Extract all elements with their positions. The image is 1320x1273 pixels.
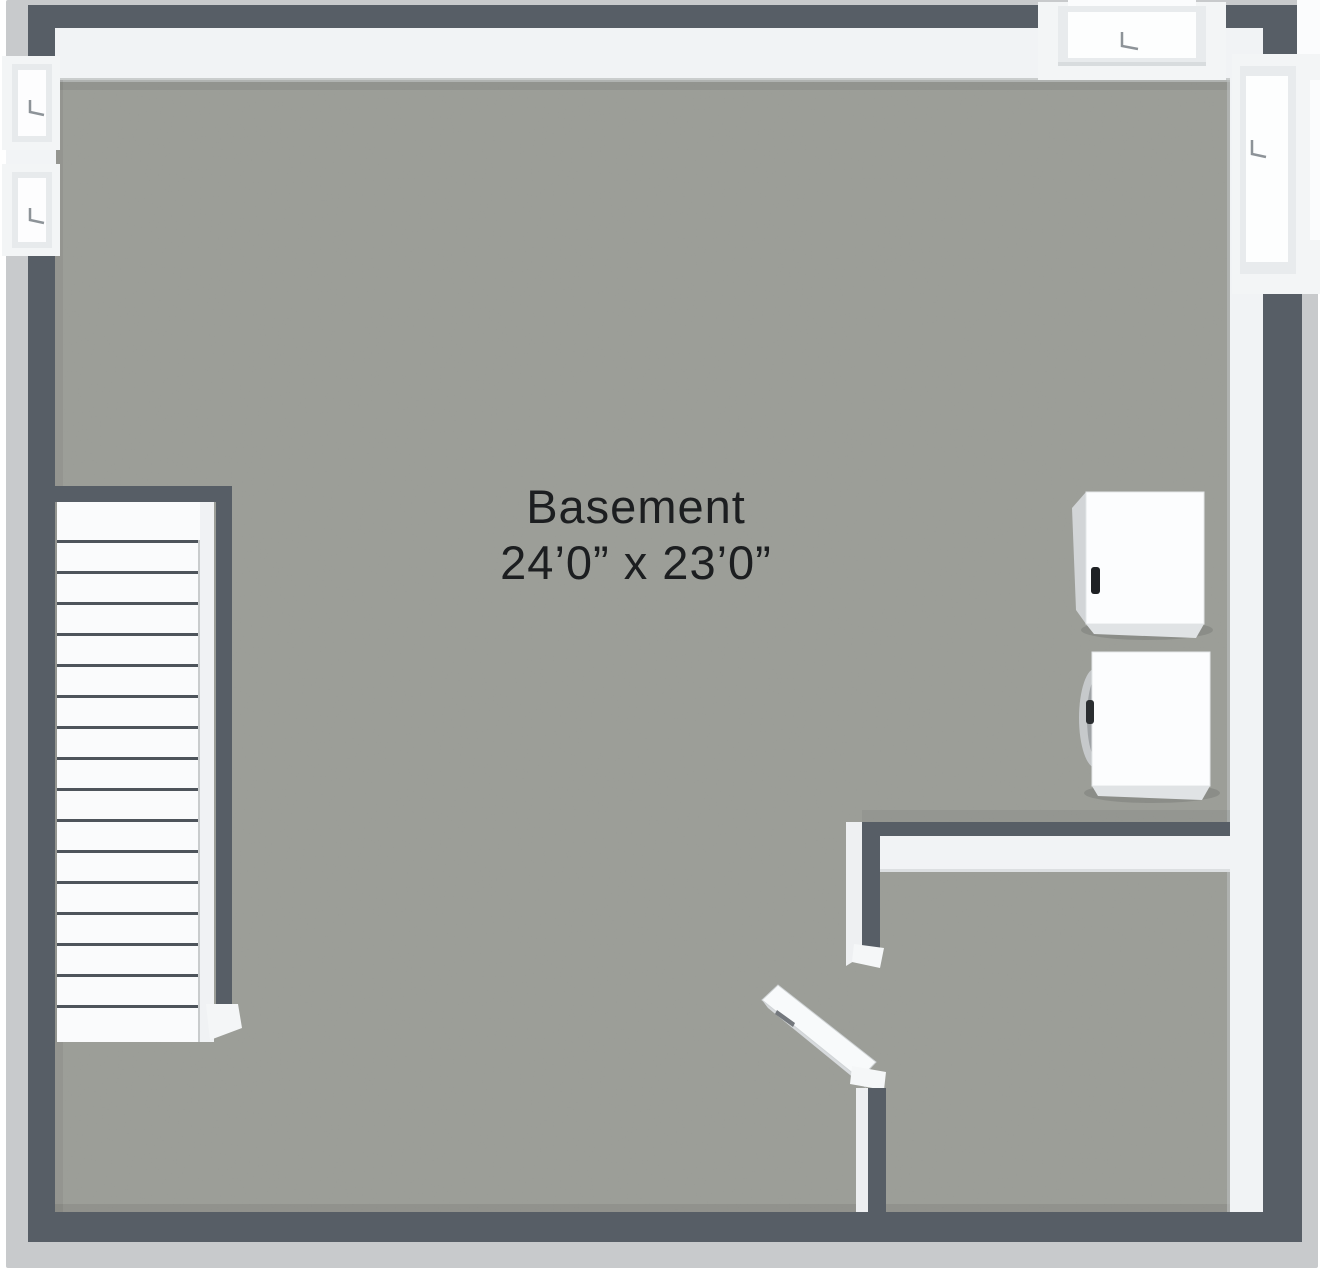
utility-wall-top-dark	[862, 822, 1230, 836]
window-well	[1310, 80, 1320, 240]
top-window	[1038, 0, 1226, 80]
window-pane	[1068, 12, 1196, 58]
utility-wall-inner-face	[862, 836, 1230, 872]
stair-tread-line	[57, 540, 200, 543]
stair-tread-line	[57, 943, 200, 946]
outside-corner-highlight	[1297, 0, 1320, 62]
window-sill-shadow	[1058, 62, 1206, 66]
floor-shadow-bottom	[55, 1204, 1230, 1212]
stair-tread-line	[57, 664, 200, 667]
stair-tread-line	[57, 881, 200, 884]
washer-detergent-slot	[1091, 567, 1100, 594]
utility-wall-lower-face	[856, 1088, 868, 1212]
stair-tread-line	[57, 850, 200, 853]
staircase	[55, 486, 242, 1042]
stair-tread-line	[57, 757, 200, 760]
room-label: Basement	[526, 480, 746, 533]
stair-wall-top	[55, 486, 232, 502]
stair-wall-side	[216, 502, 232, 1006]
stair-tread-line	[57, 726, 200, 729]
dryer-door-slot	[1086, 700, 1094, 724]
dryer	[1079, 652, 1220, 803]
washer-top	[1086, 492, 1204, 624]
stair-tread-line	[57, 571, 200, 574]
dryer-top	[1092, 652, 1210, 786]
stair-tread-line	[57, 912, 200, 915]
room-dimensions: 24’0” x 23’0”	[500, 536, 772, 589]
stair-stringer-edge	[198, 540, 200, 1042]
stair-tread-line	[57, 1005, 200, 1008]
floorplan-page: Basement 24’0” x 23’0”	[0, 0, 1320, 1273]
stair-base	[57, 502, 214, 1042]
wall-floor-seam-right	[1227, 80, 1230, 1212]
washer	[1072, 492, 1213, 640]
stair-tread-line	[57, 633, 200, 636]
stair-tread-line	[57, 819, 200, 822]
window-pane	[18, 178, 46, 242]
window-pane	[18, 70, 46, 136]
utility-wall-face-seam	[862, 869, 1230, 872]
floorplan-canvas: Basement 24’0” x 23’0”	[0, 0, 1320, 1273]
stair-stringer	[200, 502, 214, 1042]
utility-wall-shadow	[862, 810, 1230, 822]
stair-tread-line	[57, 695, 200, 698]
stair-tread-line	[57, 974, 200, 977]
stair-tread-line	[57, 602, 200, 605]
utility-wall-left-dark	[862, 836, 880, 948]
utility-wall-lower-dark	[868, 1088, 886, 1212]
window-pane	[1246, 76, 1288, 262]
left-window-1	[2, 56, 60, 150]
left-window-2	[2, 164, 60, 256]
right-window	[1232, 54, 1320, 294]
floor-shadow-top	[55, 82, 1230, 90]
stair-tread-line	[57, 788, 200, 791]
